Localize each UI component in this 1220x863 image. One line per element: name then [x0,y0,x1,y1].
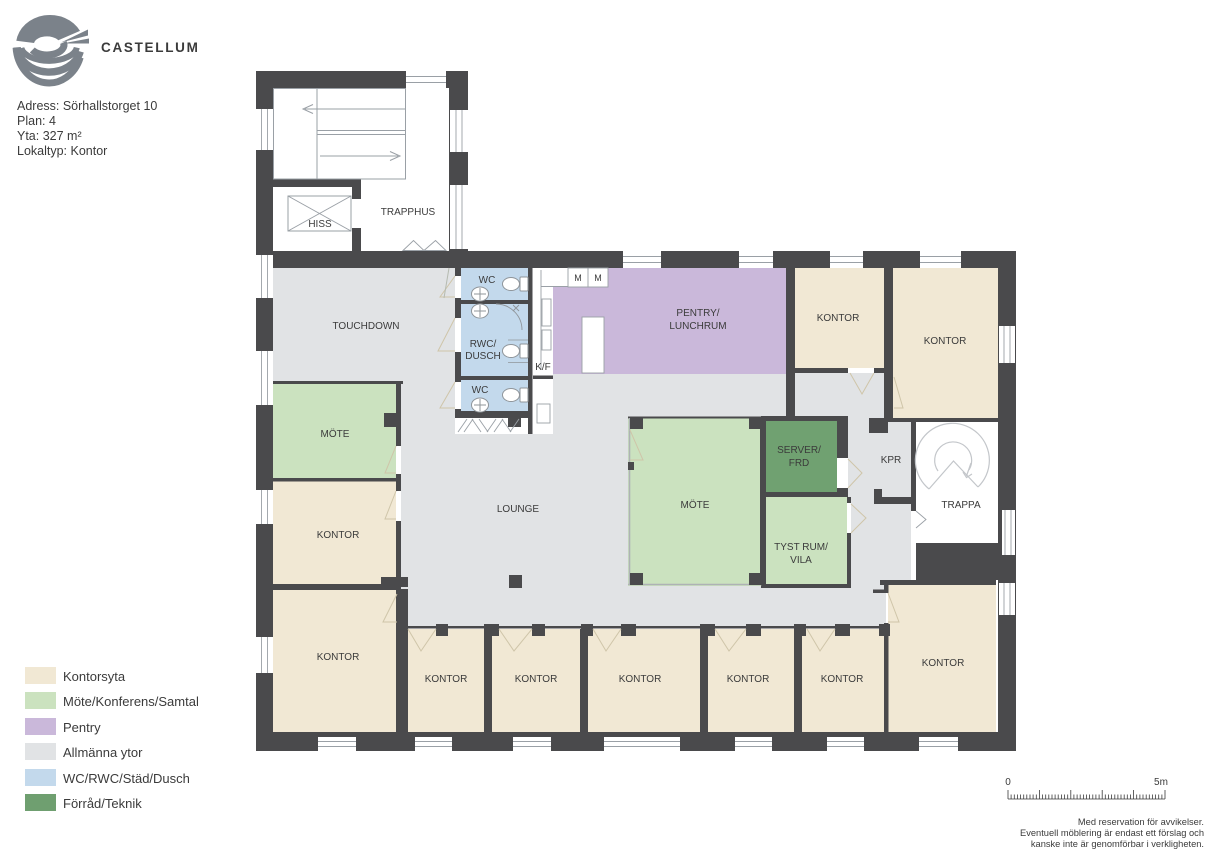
svg-text:Förråd/Teknik: Förråd/Teknik [63,796,142,811]
svg-text:KONTOR: KONTOR [817,313,860,324]
svg-text:TOUCHDOWN: TOUCHDOWN [332,321,399,332]
svg-text:Yta: 327 m²: Yta: 327 m² [17,129,82,143]
svg-text:KONTOR: KONTOR [317,530,360,541]
svg-text:Adress: Sörhallstorget 10: Adress: Sörhallstorget 10 [17,99,157,113]
svg-text:KONTOR: KONTOR [727,674,770,685]
svg-text:VILA: VILA [790,555,812,566]
svg-text:WC/RWC/Städ/Dusch: WC/RWC/Städ/Dusch [63,771,190,786]
svg-text:5m: 5m [1154,777,1168,788]
svg-text:KPR: KPR [881,455,902,466]
svg-text:Med reservation för avvikelser: Med reservation för avvikelser. [1078,817,1204,827]
svg-text:KONTOR: KONTOR [515,674,558,685]
svg-text:0: 0 [1005,777,1011,788]
svg-text:FRD: FRD [789,458,810,469]
svg-text:Eventuell möblering är endast: Eventuell möblering är endast ett försla… [1020,828,1204,838]
svg-text:M: M [594,273,602,283]
svg-text:kanske inte är genomförbar i v: kanske inte är genomförbar i verklighete… [1031,839,1204,849]
svg-text:Pentry: Pentry [63,720,101,735]
svg-text:KONTOR: KONTOR [821,674,864,685]
svg-text:TYST RUM/: TYST RUM/ [774,542,828,553]
svg-text:K/F: K/F [535,362,551,373]
svg-text:KONTOR: KONTOR [922,658,965,669]
svg-text:RWC/: RWC/ [470,339,497,350]
svg-text:MÖTE: MÖTE [321,428,350,440]
svg-text:KONTOR: KONTOR [425,674,468,685]
svg-text:HISS: HISS [308,219,332,230]
svg-text:Kontorsyta: Kontorsyta [63,669,126,684]
svg-text:CASTELLUM: CASTELLUM [101,40,200,55]
svg-text:TRAPPHUS: TRAPPHUS [381,207,436,218]
svg-text:Lokaltyp: Kontor: Lokaltyp: Kontor [17,144,107,158]
svg-text:WC: WC [479,275,496,286]
svg-text:M: M [574,273,582,283]
svg-text:DUSCH: DUSCH [465,351,501,362]
svg-text:Plan: 4: Plan: 4 [17,114,56,128]
svg-text:KONTOR: KONTOR [619,674,662,685]
svg-text:LUNCHRUM: LUNCHRUM [669,321,726,332]
svg-text:MÖTE: MÖTE [681,499,710,511]
svg-text:SERVER/: SERVER/ [777,445,821,456]
svg-text:Möte/Konferens/Samtal: Möte/Konferens/Samtal [63,694,199,709]
svg-text:KONTOR: KONTOR [317,652,360,663]
svg-text:KONTOR: KONTOR [924,336,967,347]
svg-text:PENTRY/: PENTRY/ [676,308,719,319]
svg-text:TRAPPA: TRAPPA [941,500,981,511]
svg-text:Allmänna ytor: Allmänna ytor [63,745,143,760]
svg-text:LOUNGE: LOUNGE [497,504,540,515]
svg-text:WC: WC [472,385,489,396]
